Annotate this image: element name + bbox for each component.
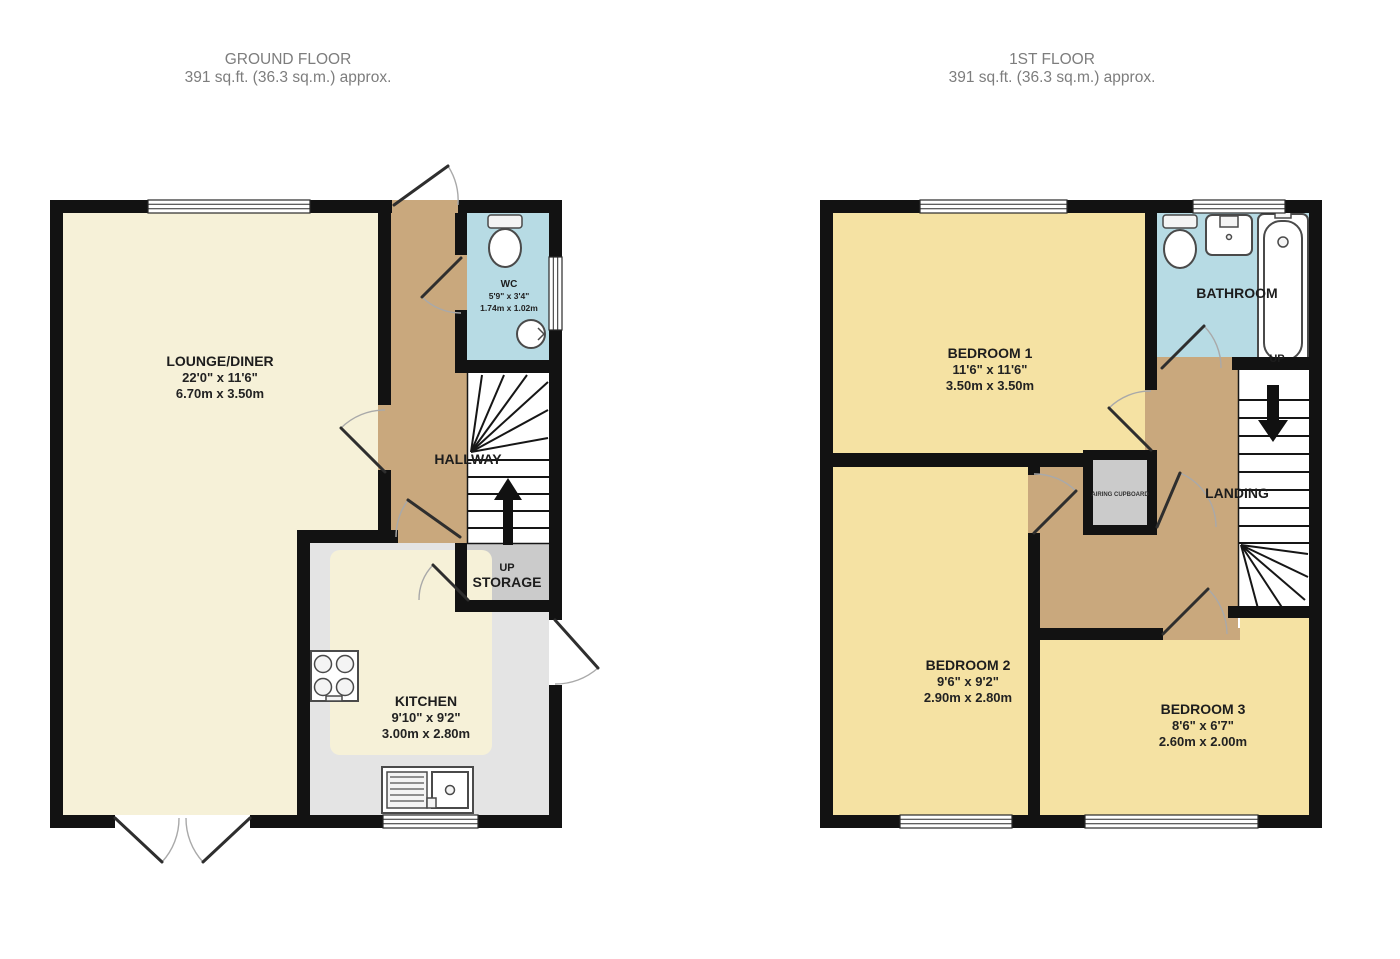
stairs-up-label: UP <box>499 562 514 574</box>
bedroom3-size-metric: 2.60m x 2.00m <box>1159 734 1247 749</box>
room-bedroom-1 <box>833 213 1145 453</box>
window <box>383 815 478 828</box>
bedroom2-size-imperial: 9'6" x 9'2" <box>937 674 999 689</box>
basin-drain <box>1227 235 1232 240</box>
wc-size-imperial: 5'9" x 3'4" <box>489 291 529 301</box>
landing-label: LANDING <box>1205 485 1269 501</box>
first-floor-plan: BEDROOM 1 11'6" x 11'6" 3.50m x 3.50m BA… <box>820 200 1322 828</box>
lounge-size-imperial: 22'0" x 11'6" <box>182 370 258 385</box>
wc-label: WC <box>501 279 518 290</box>
bedroom1-door-opening <box>1145 390 1157 450</box>
window <box>549 257 562 330</box>
bathroom-label: BATHROOM <box>1196 285 1277 301</box>
window <box>148 200 310 213</box>
bedroom3-door-opening <box>1163 628 1240 640</box>
sink-icon <box>517 320 545 348</box>
toilet-cistern-icon <box>1163 215 1197 228</box>
lounge-label: LOUNGE/DINER <box>166 353 273 369</box>
kitchen-size-metric: 3.00m x 2.80m <box>382 726 470 741</box>
toilet-icon <box>1164 230 1196 268</box>
hob-burner <box>315 656 332 673</box>
window <box>1085 815 1258 828</box>
front-door-gap <box>392 200 458 213</box>
kitchen-size-imperial: 9'10" x 9'2" <box>391 710 460 725</box>
sink-tap <box>427 798 436 808</box>
bedroom3-label: BEDROOM 3 <box>1161 701 1246 717</box>
bedroom2-door-opening <box>1028 475 1040 533</box>
first-floor-subtitle: 391 sq.ft. (36.3 sq.m.) approx. <box>949 69 1156 86</box>
front-door-arc <box>448 166 458 205</box>
lounge-size-metric: 6.70m x 3.50m <box>176 386 264 401</box>
first-floor-title: 1ST FLOOR <box>1009 51 1095 68</box>
hob-burner <box>337 679 354 696</box>
wc-size-metric: 1.74m x 1.02m <box>480 303 538 313</box>
toilet-cistern-icon <box>488 215 522 228</box>
kitchen-label: KITCHEN <box>395 693 457 709</box>
hallway-label: HALLWAY <box>434 451 502 467</box>
toilet-icon <box>489 229 521 267</box>
bedroom3-size-imperial: 8'6" x 6'7" <box>1172 718 1234 733</box>
hob-burner <box>315 679 332 696</box>
bedroom1-label: BEDROOM 1 <box>948 345 1033 361</box>
bedroom1-size-imperial: 11'6" x 11'6" <box>953 362 1028 377</box>
bedroom1-size-metric: 3.50m x 3.50m <box>946 378 1034 393</box>
bedroom2-label: BEDROOM 2 <box>926 657 1011 673</box>
basin-tap <box>1220 216 1238 227</box>
hob-burner <box>337 656 354 673</box>
sink-drain <box>446 786 455 795</box>
bedroom2-size-metric: 2.90m x 2.80m <box>924 690 1012 705</box>
bathroom-up-label: UP <box>1269 353 1284 365</box>
french-door-gap <box>115 815 250 828</box>
ground-floor-subtitle: 391 sq.ft. (36.3 sq.m.) approx. <box>185 69 392 86</box>
airing-cupboard-label: AIRING CUPBOARD <box>1091 492 1149 498</box>
ground-floor-plan: LOUNGE/DINER 22'0" x 11'6" 6.70m x 3.50m… <box>50 166 598 862</box>
hob-control <box>326 696 342 701</box>
storage-label: STORAGE <box>473 574 542 590</box>
ground-floor-title: GROUND FLOOR <box>225 51 352 68</box>
floorplan-canvas: GROUND FLOOR 391 sq.ft. (36.3 sq.m.) app… <box>0 0 1400 959</box>
back-door-gap <box>549 620 562 685</box>
front-door <box>394 166 448 205</box>
room-bedroom-2 <box>833 467 1028 815</box>
floorplan-svg: GROUND FLOOR 391 sq.ft. (36.3 sq.m.) app… <box>0 0 1400 959</box>
window <box>1193 200 1285 213</box>
window <box>920 200 1067 213</box>
lounge-door-opening <box>378 405 391 470</box>
bathtub-drain <box>1278 237 1288 247</box>
window <box>900 815 1012 828</box>
